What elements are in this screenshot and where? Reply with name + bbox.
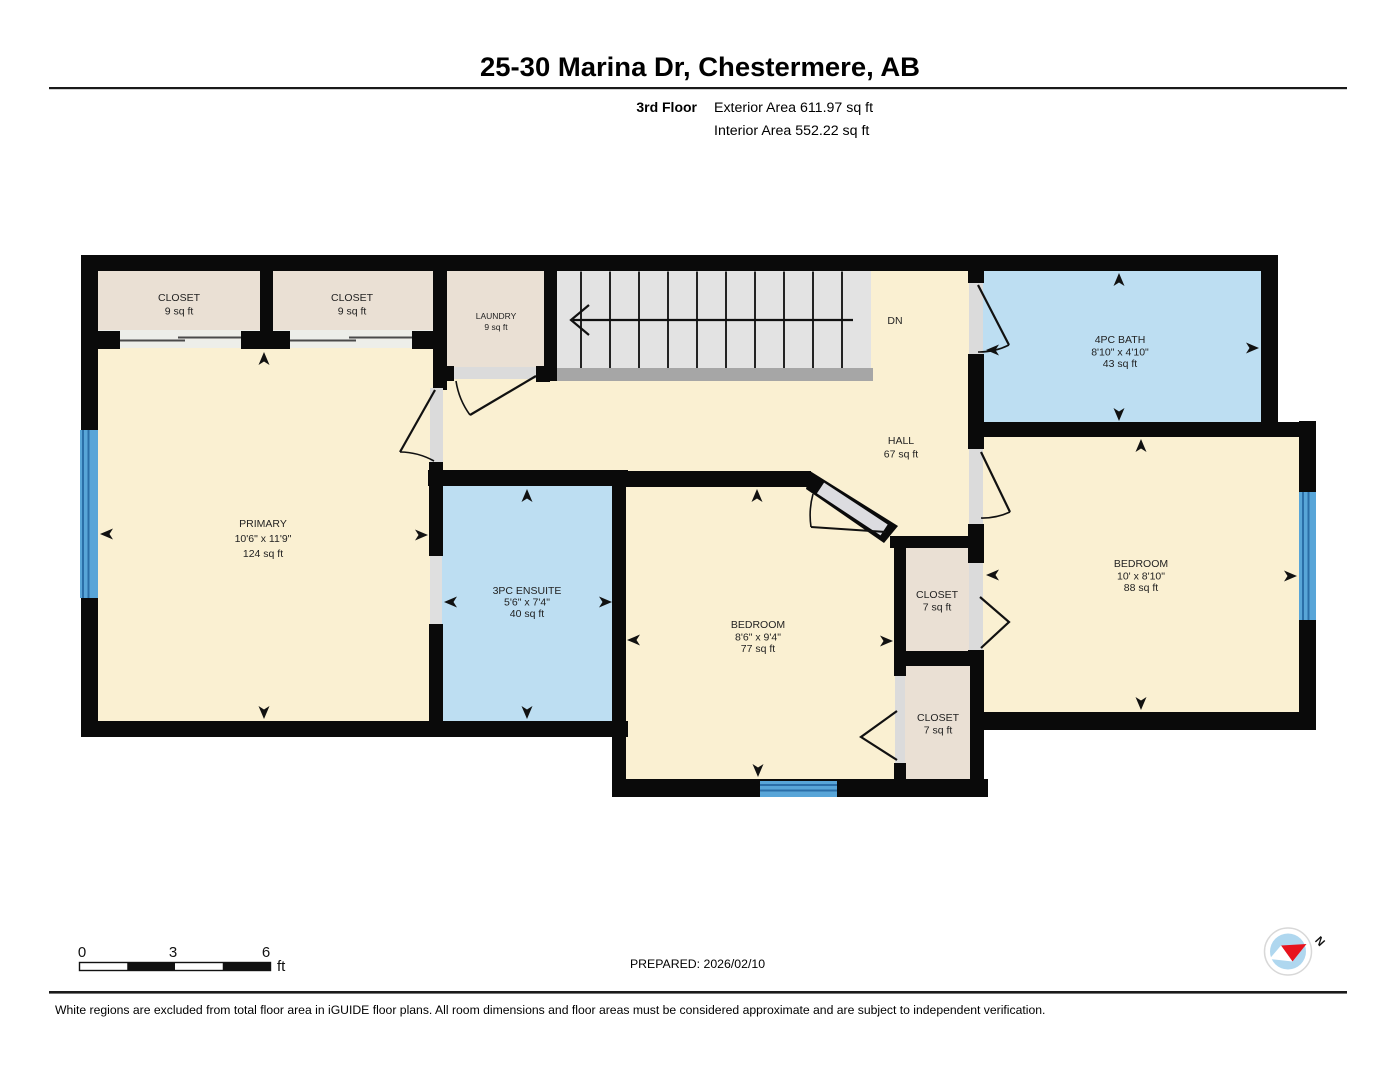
svg-text:CLOSET: CLOSET [916,589,959,601]
svg-text:124 sq ft: 124 sq ft [243,548,283,560]
svg-text:3PC ENSUITE: 3PC ENSUITE [493,585,562,597]
svg-text:CLOSET: CLOSET [331,292,374,304]
svg-text:10' x 8'10": 10' x 8'10" [1117,571,1165,583]
svg-text:0: 0 [78,944,86,961]
svg-text:BEDROOM: BEDROOM [1114,558,1168,570]
svg-text:6: 6 [262,944,270,961]
svg-text:ft: ft [277,958,286,975]
svg-text:LAUNDRY: LAUNDRY [476,311,517,321]
svg-text:25-30 Marina Dr, Chestermere,: 25-30 Marina Dr, Chestermere, AB [480,52,920,82]
svg-text:8'6" x 9'4": 8'6" x 9'4" [735,632,781,644]
svg-text:88 sq ft: 88 sq ft [1124,582,1159,594]
svg-text:43 sq ft: 43 sq ft [1103,358,1138,370]
svg-text:CLOSET: CLOSET [917,712,960,724]
svg-text:7 sq ft: 7 sq ft [924,725,953,737]
svg-text:4PC BATH: 4PC BATH [1095,334,1146,346]
svg-text:77 sq ft: 77 sq ft [741,643,776,655]
svg-text:BEDROOM: BEDROOM [731,619,785,631]
svg-text:CLOSET: CLOSET [158,292,201,304]
svg-text:9 sq ft: 9 sq ft [338,306,367,318]
svg-text:40 sq ft: 40 sq ft [510,608,545,620]
svg-text:PREPARED: 2026/02/10: PREPARED: 2026/02/10 [630,957,765,971]
svg-text:8'10" x 4'10": 8'10" x 4'10" [1091,347,1149,359]
svg-text:N: N [1312,935,1326,949]
svg-text:5'6" x 7'4": 5'6" x 7'4" [504,597,550,609]
svg-text:10'6" x 11'9": 10'6" x 11'9" [235,533,292,545]
svg-text:3rd Floor: 3rd Floor [636,99,697,115]
svg-text:Interior Area 552.22 sq ft: Interior Area 552.22 sq ft [714,123,869,139]
svg-text:9 sq ft: 9 sq ft [484,322,508,332]
svg-text:9 sq ft: 9 sq ft [165,306,194,318]
svg-text:DN: DN [887,315,902,327]
svg-text:Exterior Area 611.97 sq ft: Exterior Area 611.97 sq ft [714,100,873,116]
svg-text:PRIMARY: PRIMARY [239,518,287,530]
svg-text:3: 3 [169,944,177,961]
svg-text:67 sq ft: 67 sq ft [884,449,919,461]
svg-text:HALL: HALL [888,435,914,447]
svg-text:White regions are excluded fro: White regions are excluded from total fl… [55,1003,1045,1017]
svg-text:7 sq ft: 7 sq ft [923,602,952,614]
